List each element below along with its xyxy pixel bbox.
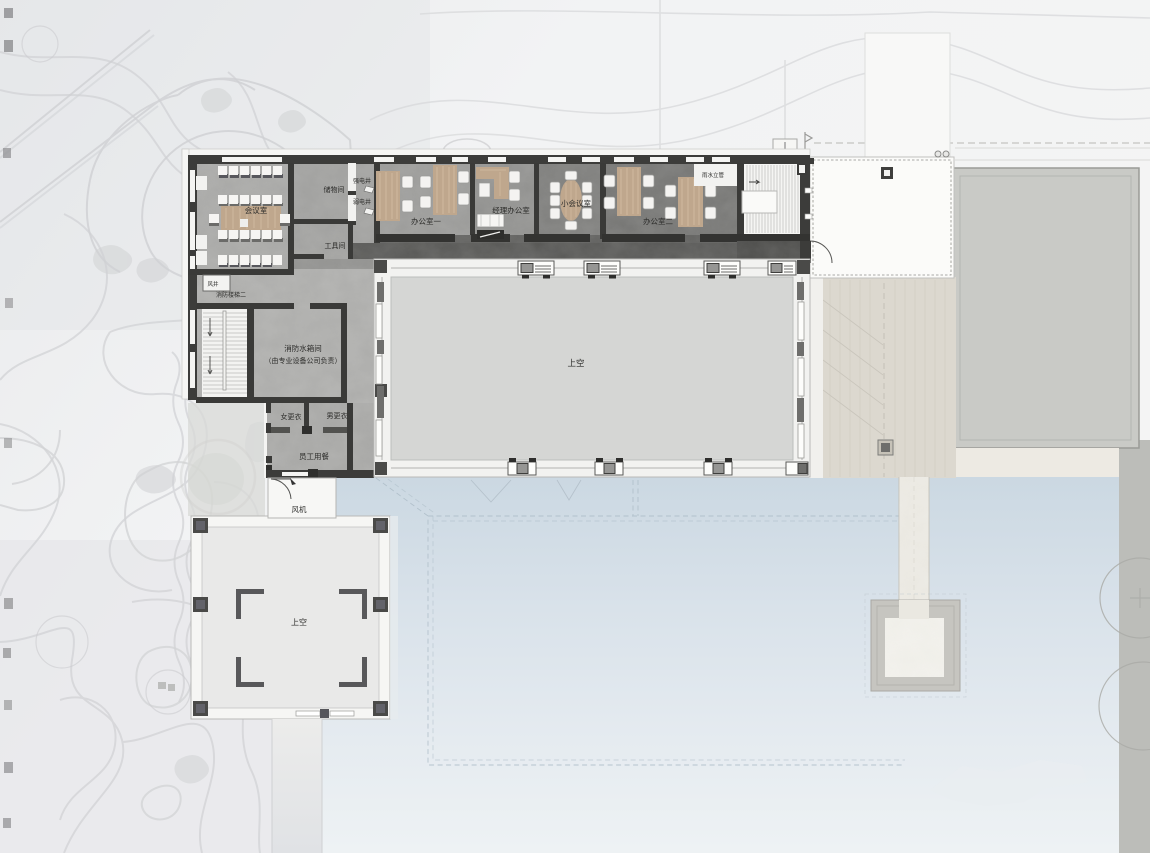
- svg-text:办公室一: 办公室一: [411, 216, 441, 226]
- svg-text:上空: 上空: [567, 358, 584, 368]
- svg-text:小会议室: 小会议室: [561, 198, 591, 208]
- svg-text:男更衣: 男更衣: [327, 411, 348, 420]
- svg-text:弱电井: 弱电井: [353, 198, 371, 206]
- svg-text:储物间: 储物间: [324, 185, 345, 194]
- svg-text:经理办公室: 经理办公室: [492, 205, 530, 215]
- svg-text:消防水箱间: 消防水箱间: [284, 343, 322, 353]
- svg-text:消防楼梯二: 消防楼梯二: [216, 291, 246, 299]
- svg-text:工具间: 工具间: [325, 242, 346, 250]
- svg-text:雨水立管: 雨水立管: [702, 171, 725, 179]
- svg-text:上空: 上空: [291, 617, 307, 627]
- svg-text:强电井: 强电井: [353, 177, 371, 185]
- svg-text:（由专业设备公司负责）: （由专业设备公司负责）: [265, 356, 342, 365]
- svg-text:风机: 风机: [292, 504, 307, 514]
- svg-text:办公室二: 办公室二: [643, 216, 673, 226]
- svg-text:员工用餐: 员工用餐: [299, 452, 329, 461]
- svg-text:风井: 风井: [207, 280, 219, 288]
- svg-text:女更衣: 女更衣: [281, 412, 302, 421]
- svg-text:会议室: 会议室: [245, 205, 268, 215]
